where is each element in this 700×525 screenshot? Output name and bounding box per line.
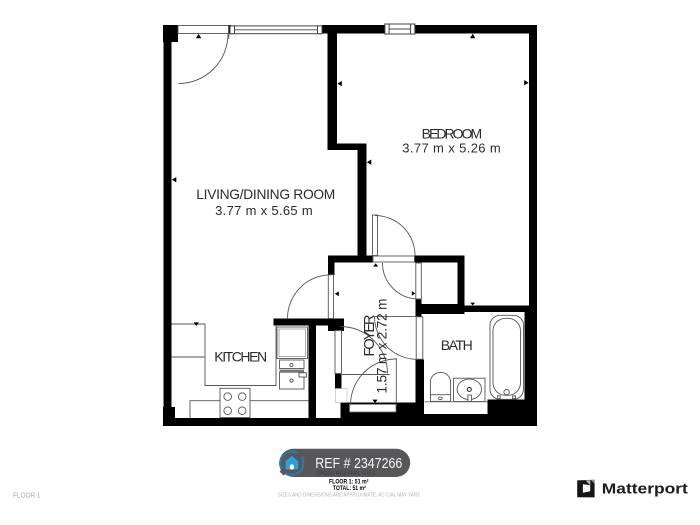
svg-text:Matterport: Matterport <box>602 480 688 497</box>
svg-text:LIVING/DINING ROOM: LIVING/DINING ROOM <box>196 187 335 202</box>
svg-text:3.77 m x 5.65 m: 3.77 m x 5.65 m <box>215 203 313 218</box>
svg-text:TOTAL: 51 m²: TOTAL: 51 m² <box>333 485 367 492</box>
svg-text:SIZES AND DIMENSIONS ARE APPRO: SIZES AND DIMENSIONS ARE APPROXIMATE, AC… <box>278 492 421 498</box>
svg-text:KITCHEN: KITCHEN <box>214 348 267 364</box>
svg-text:FLOOR 1: FLOOR 1 <box>13 492 41 499</box>
svg-text:1.57 m x 2.72 m: 1.57 m x 2.72 m <box>375 299 390 394</box>
svg-text:BATH: BATH <box>441 337 473 353</box>
svg-text:BEDROOM: BEDROOM <box>422 125 483 141</box>
svg-text:GROSS INTERNAL AREA: GROSS INTERNAL AREA <box>316 470 375 477</box>
svg-text:3.77 m x 5.26 m: 3.77 m x 5.26 m <box>402 140 501 155</box>
